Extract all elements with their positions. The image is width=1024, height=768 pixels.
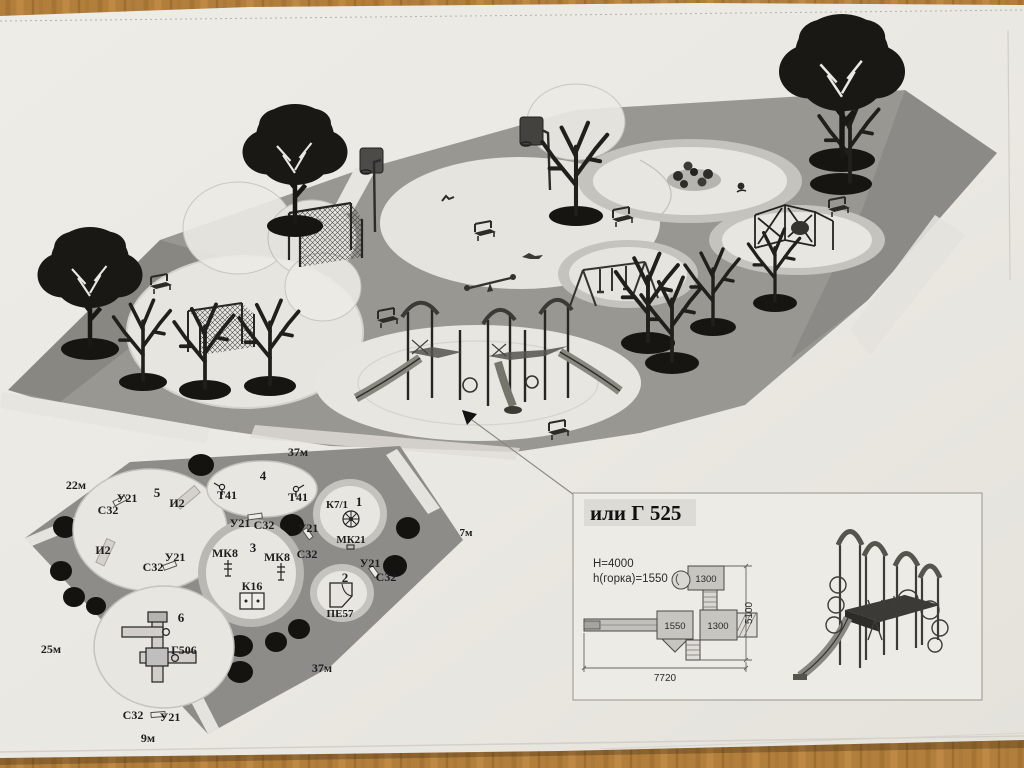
playground-plan-photo: 37м 22м 25м 9м 37м 7м 5 4 1 3 2 6 У21 С3… bbox=[0, 0, 1024, 768]
photo-vignette bbox=[0, 0, 1024, 768]
